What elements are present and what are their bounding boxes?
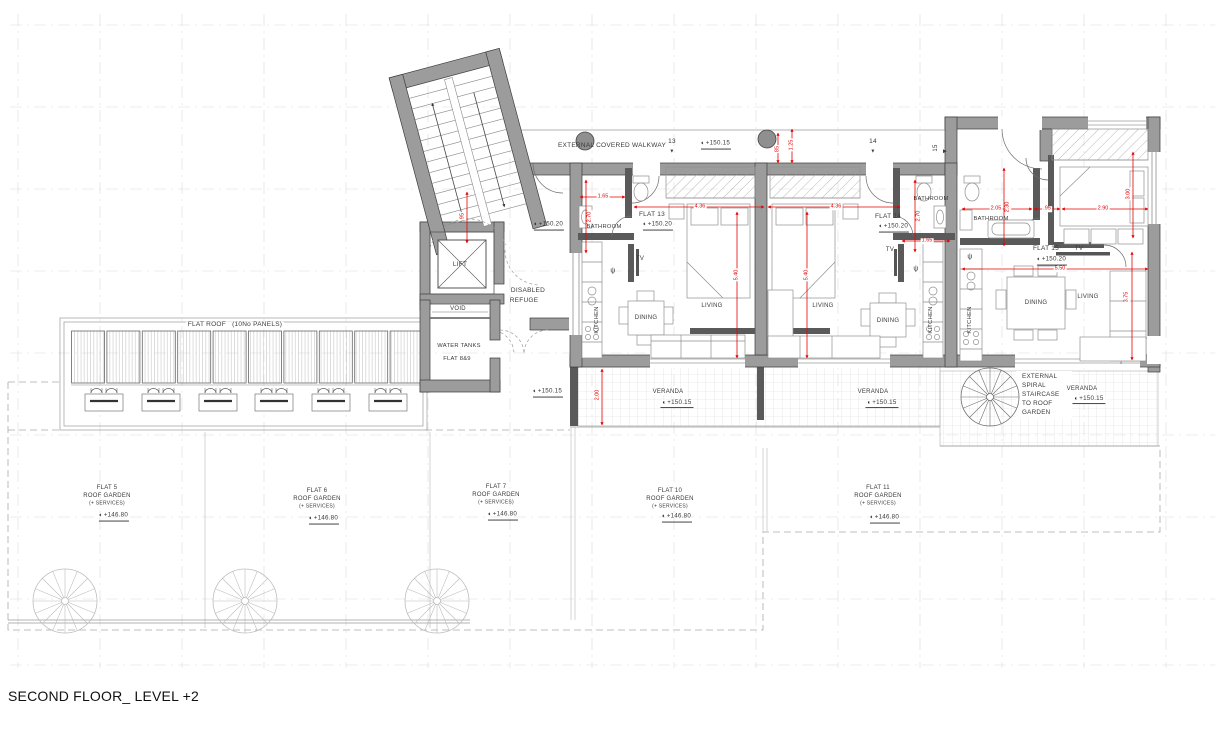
- roof-panel: [355, 331, 388, 383]
- spiral-stair-veranda: [961, 368, 1019, 426]
- void-hatch: [430, 304, 490, 318]
- condensing-unit: [142, 394, 180, 411]
- floor-plan-drawing: [0, 0, 1223, 742]
- roof-panel: [178, 331, 211, 383]
- roof-panel: [319, 331, 352, 383]
- condensing-unit: [369, 394, 407, 411]
- fan-icon: [375, 389, 401, 394]
- roof-panel: [390, 331, 423, 383]
- spiral-stair-garden-1: [33, 569, 97, 633]
- walkway-column-icon: [758, 130, 776, 148]
- walkway-column-icon: [576, 132, 594, 150]
- fan-icon: [318, 389, 344, 394]
- roof-panel: [284, 331, 317, 383]
- drawing-title: SECOND FLOOR_ LEVEL +2: [8, 688, 199, 704]
- lift-shaft: [430, 232, 494, 294]
- roof-panel: [249, 331, 282, 383]
- fan-icon: [205, 389, 231, 394]
- verandas: [570, 367, 1160, 446]
- fan-icon: [148, 389, 174, 394]
- condensing-unit: [199, 394, 237, 411]
- roof-panel: [213, 331, 246, 383]
- condensing-unit: [255, 394, 293, 411]
- flat-roof-panels-area: [60, 318, 427, 430]
- external-covered-walkway: [518, 130, 945, 150]
- spiral-stair-garden-2: [213, 569, 277, 633]
- roof-panel: [107, 331, 140, 383]
- spiral-stair-garden-3: [405, 569, 469, 633]
- roof-panel: [142, 331, 175, 383]
- condensing-unit: [312, 394, 350, 411]
- condensing-unit: [85, 394, 123, 411]
- floor-plan-sheet: 1.652.704.365.404.365.402.701.652.052.30…: [0, 0, 1223, 742]
- fan-icon: [91, 389, 117, 394]
- roof-panel: [72, 331, 105, 383]
- fan-icon: [261, 389, 287, 394]
